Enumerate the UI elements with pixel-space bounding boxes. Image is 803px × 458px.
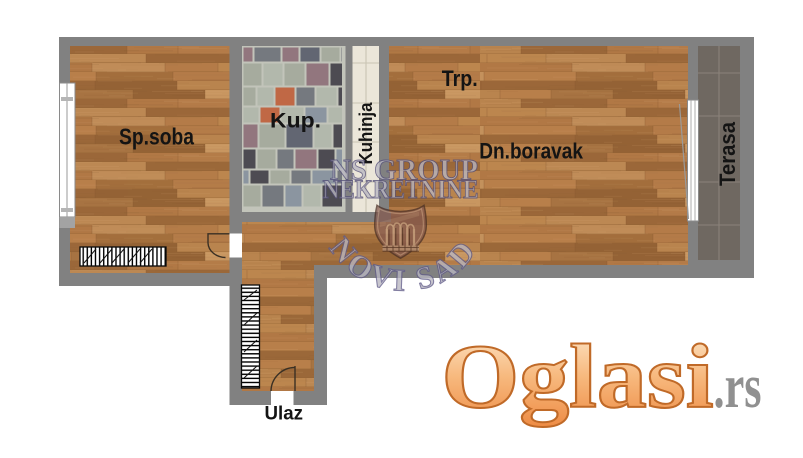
svg-text:Terasa: Terasa — [715, 121, 740, 186]
svg-text:Kup.: Kup. — [270, 110, 321, 133]
svg-text:Sp.soba: Sp.soba — [119, 124, 194, 150]
svg-text:NEKRETNINE: NEKRETNINE — [323, 175, 479, 204]
svg-text:Ulaz: Ulaz — [265, 403, 304, 425]
svg-text:Oglasi: Oglasi — [442, 326, 714, 427]
svg-text:.rs: .rs — [714, 353, 762, 421]
svg-text:Trp.: Trp. — [442, 66, 478, 91]
svg-text:Dn.boravak: Dn.boravak — [479, 138, 583, 163]
